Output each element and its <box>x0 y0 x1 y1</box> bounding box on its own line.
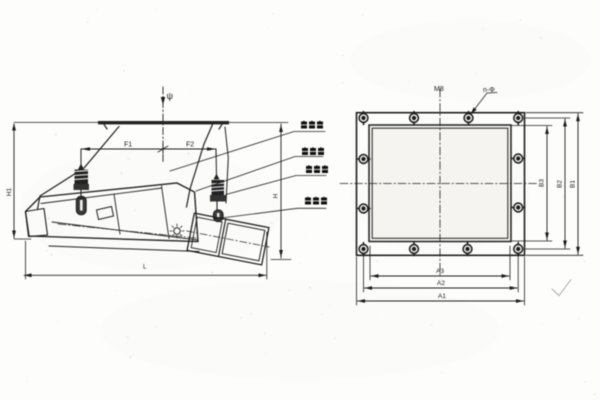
svg-text:M8: M8 <box>434 86 444 93</box>
svg-text:F1: F1 <box>124 142 132 149</box>
svg-text:B1: B1 <box>570 180 577 188</box>
svg-text:ψ: ψ <box>167 91 173 101</box>
svg-text:A2: A2 <box>437 280 445 287</box>
svg-text:F2: F2 <box>186 142 194 149</box>
svg-text:H: H <box>273 193 280 198</box>
svg-text:B3: B3 <box>539 179 546 187</box>
svg-text:A1: A1 <box>438 293 446 300</box>
svg-text:B2: B2 <box>557 180 564 188</box>
svg-text:A3: A3 <box>436 268 444 275</box>
svg-text:H1: H1 <box>6 187 13 196</box>
